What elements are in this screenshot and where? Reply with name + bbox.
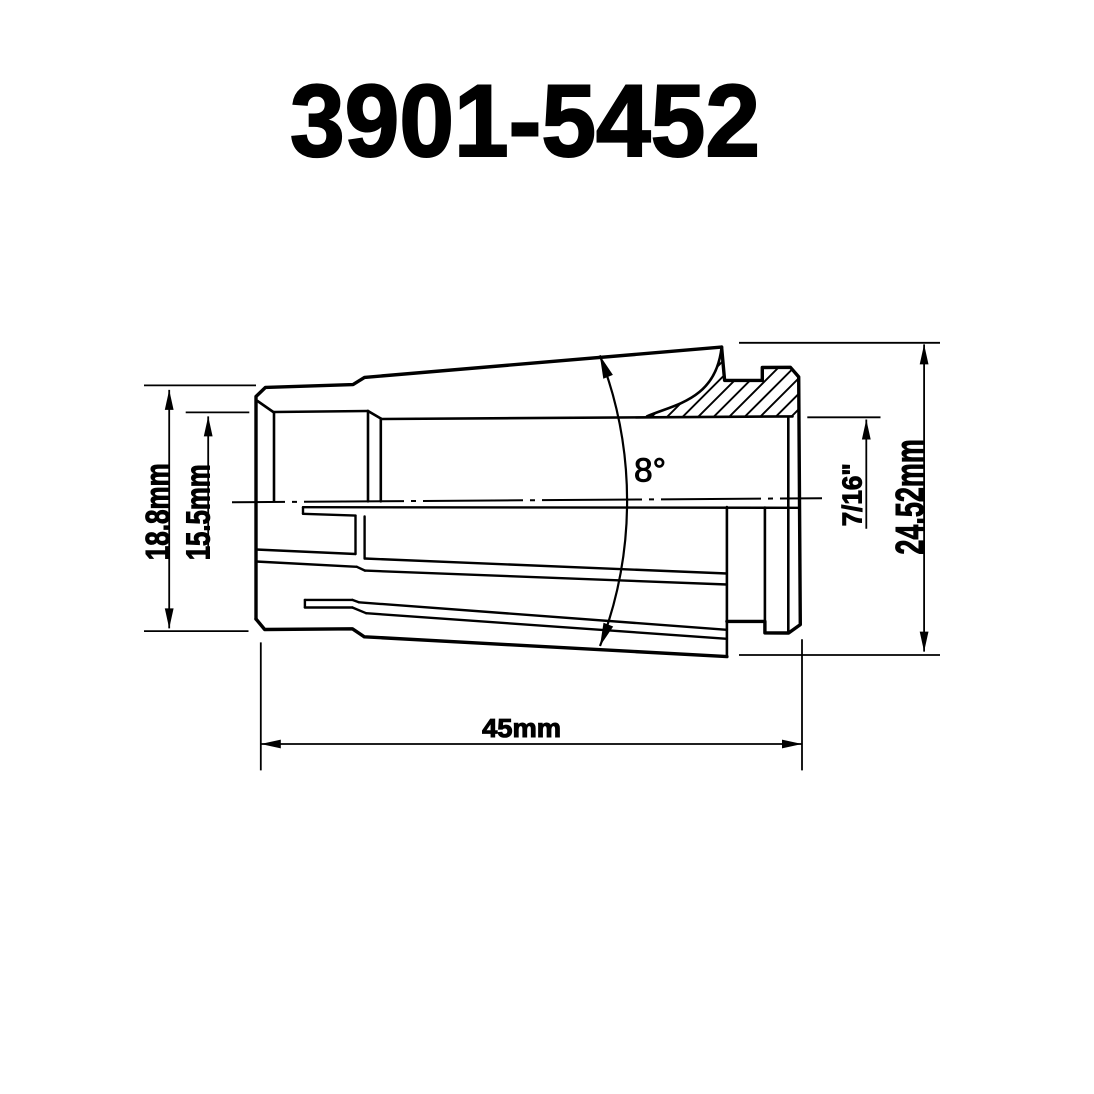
svg-text:15.5mm: 15.5mm <box>181 464 218 560</box>
svg-text:7/16": 7/16" <box>837 463 868 526</box>
svg-text:8°: 8° <box>634 452 666 489</box>
svg-text:45mm: 45mm <box>482 713 561 743</box>
svg-text:3901-5452: 3901-5452 <box>290 63 760 178</box>
svg-text:24.52mm: 24.52mm <box>889 439 933 554</box>
svg-text:18.8mm: 18.8mm <box>140 463 177 560</box>
